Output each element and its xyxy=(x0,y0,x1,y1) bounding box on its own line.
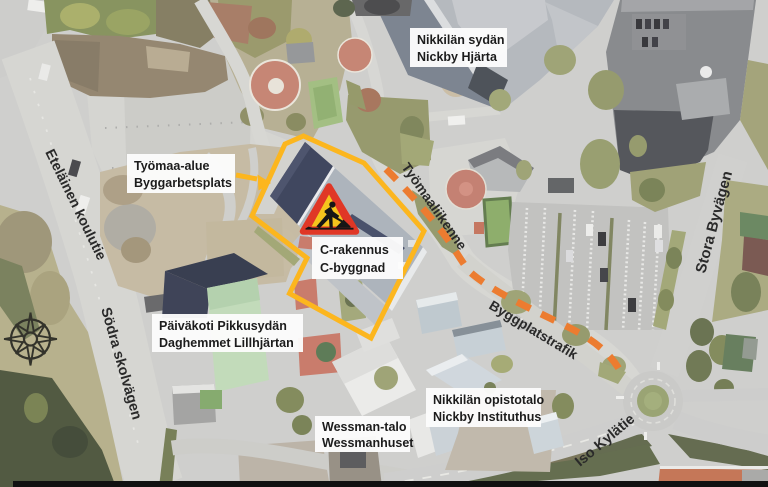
svg-text:Nickby Hjärta: Nickby Hjärta xyxy=(417,50,498,64)
svg-text:Byggarbetsplats: Byggarbetsplats xyxy=(134,176,232,190)
svg-text:Nickby Instituthus: Nickby Instituthus xyxy=(433,410,541,424)
svg-text:C-byggnad: C-byggnad xyxy=(320,261,385,275)
svg-text:C-rakennus: C-rakennus xyxy=(320,243,389,257)
svg-text:Nikkilän sydän: Nikkilän sydän xyxy=(417,33,505,47)
svg-text:Wessman-talo: Wessman-talo xyxy=(322,420,407,434)
svg-text:Työmaa-alue: Työmaa-alue xyxy=(134,159,210,173)
svg-text:Daghemmet Lillhjärtan: Daghemmet Lillhjärtan xyxy=(159,336,294,350)
svg-text:Wessmanhuset: Wessmanhuset xyxy=(322,436,414,450)
svg-text:Päiväkoti Pikkusydän: Päiväkoti Pikkusydän xyxy=(159,319,287,333)
svg-text:Nikkilän opistotalo: Nikkilän opistotalo xyxy=(433,393,544,407)
